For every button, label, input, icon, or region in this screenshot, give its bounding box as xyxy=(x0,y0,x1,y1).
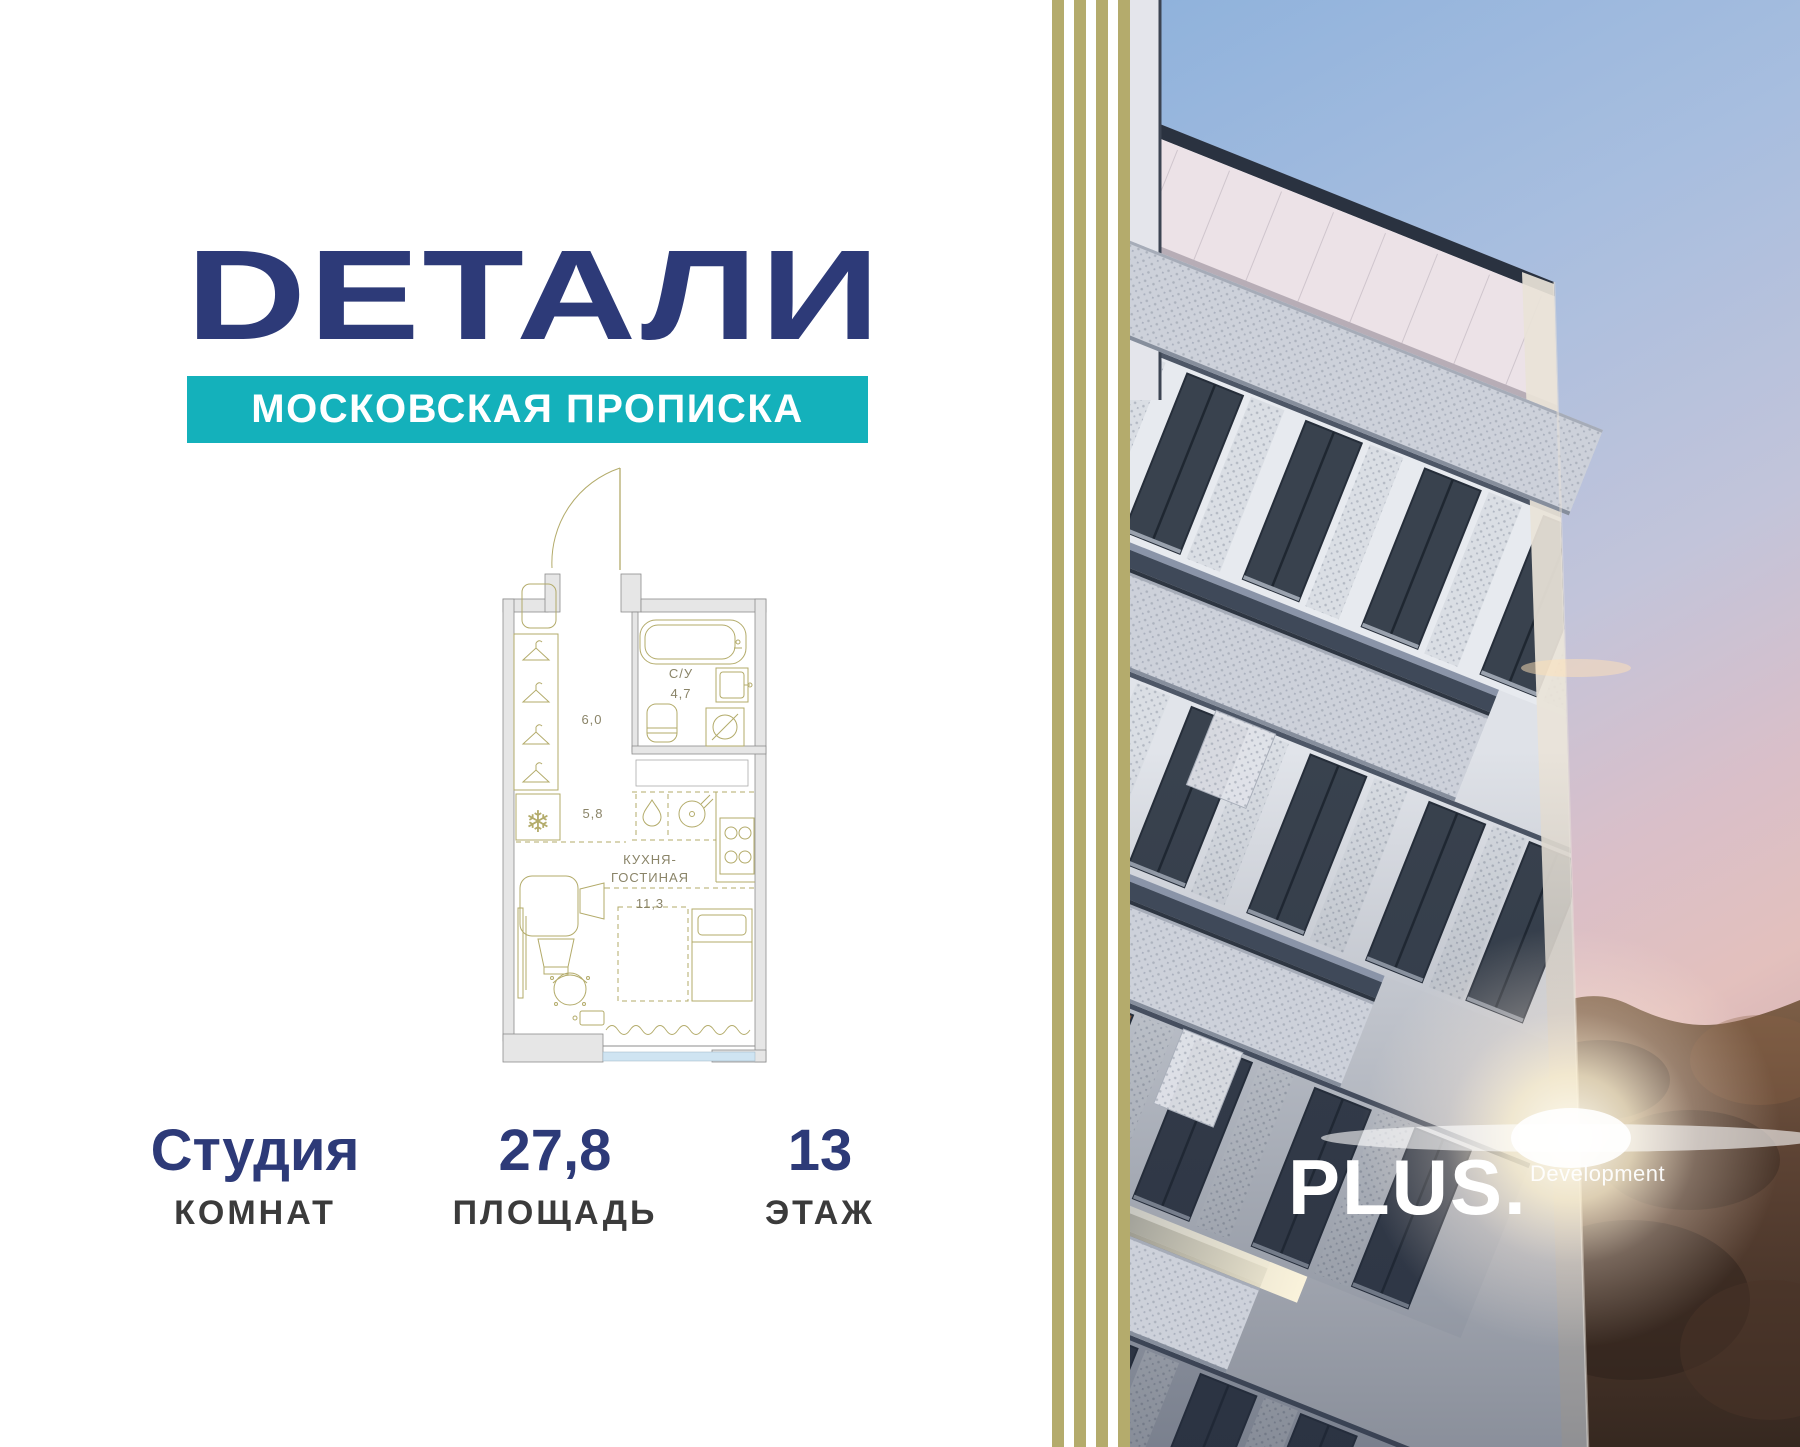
rooms-label: КОМНАТ xyxy=(95,1194,415,1233)
floor-label: ЭТАЖ xyxy=(665,1194,975,1233)
chair-icon-2 xyxy=(538,939,574,967)
living-label-2: ГОСТИНАЯ xyxy=(611,870,689,885)
bathtub-icon xyxy=(640,620,746,664)
bath-area: 4,7 xyxy=(670,686,691,701)
toilet-icon xyxy=(647,704,677,742)
armchair-icon xyxy=(551,973,590,1006)
entrance-door-icon xyxy=(552,468,620,570)
ad-poster: DЕТАЛИ МОСКОВСКАЯ ПРОПИСКА xyxy=(0,0,1800,1447)
area-label: ПЛОЩАДЬ xyxy=(400,1194,710,1233)
living-zone-dashes xyxy=(618,907,688,1001)
washing-machine-icon xyxy=(706,708,744,746)
plan-niche xyxy=(636,760,748,786)
cooktop-icon xyxy=(720,818,754,874)
snowflake-icon: ❄ xyxy=(525,806,550,839)
living-area: 11,3 xyxy=(636,896,664,911)
kitchen-area: 5,8 xyxy=(582,806,603,821)
wall-item-icon xyxy=(580,1011,604,1025)
hall-area: 6,0 xyxy=(581,712,602,727)
developer-logo: PLUS. xyxy=(1288,1143,1528,1231)
brand-logo: DЕТАЛИ xyxy=(186,232,882,360)
banner-strip: МОСКОВСКАЯ ПРОПИСКА xyxy=(187,376,868,443)
bath-label: С/У xyxy=(669,666,693,681)
area-value: 27,8 xyxy=(400,1122,710,1180)
stat-rooms: Студия КОМНАТ xyxy=(95,1122,415,1233)
balcony-glass xyxy=(603,1052,755,1061)
developer-suffix-label: Development xyxy=(1530,1161,1665,1186)
rooms-value: Студия xyxy=(95,1122,415,1180)
stat-area: 27,8 ПЛОЩАДЬ xyxy=(400,1122,710,1233)
chair-icon xyxy=(580,883,608,919)
building-photo: PLUS. Development xyxy=(1130,0,1800,1447)
floor-plan: ❄ С/У 4,7 6,0 5,8 КУХНЯ- ГОСТИНАЯ 11,3 xyxy=(500,452,770,1077)
stripe-divider xyxy=(1052,0,1130,1447)
hanger-icons xyxy=(523,641,549,782)
stat-floor: 13 ЭТАЖ xyxy=(665,1122,975,1233)
stove-icon xyxy=(679,795,713,827)
curtain-wave-icon xyxy=(606,1026,750,1035)
banner-text: МОСКОВСКАЯ ПРОПИСКА xyxy=(251,387,803,432)
table-icon xyxy=(520,876,578,936)
drop-icon xyxy=(643,800,661,826)
sink-icon xyxy=(716,668,752,702)
floor-value: 13 xyxy=(665,1122,975,1180)
living-label-1: КУХНЯ- xyxy=(623,852,677,867)
bed-icon xyxy=(692,909,752,1001)
